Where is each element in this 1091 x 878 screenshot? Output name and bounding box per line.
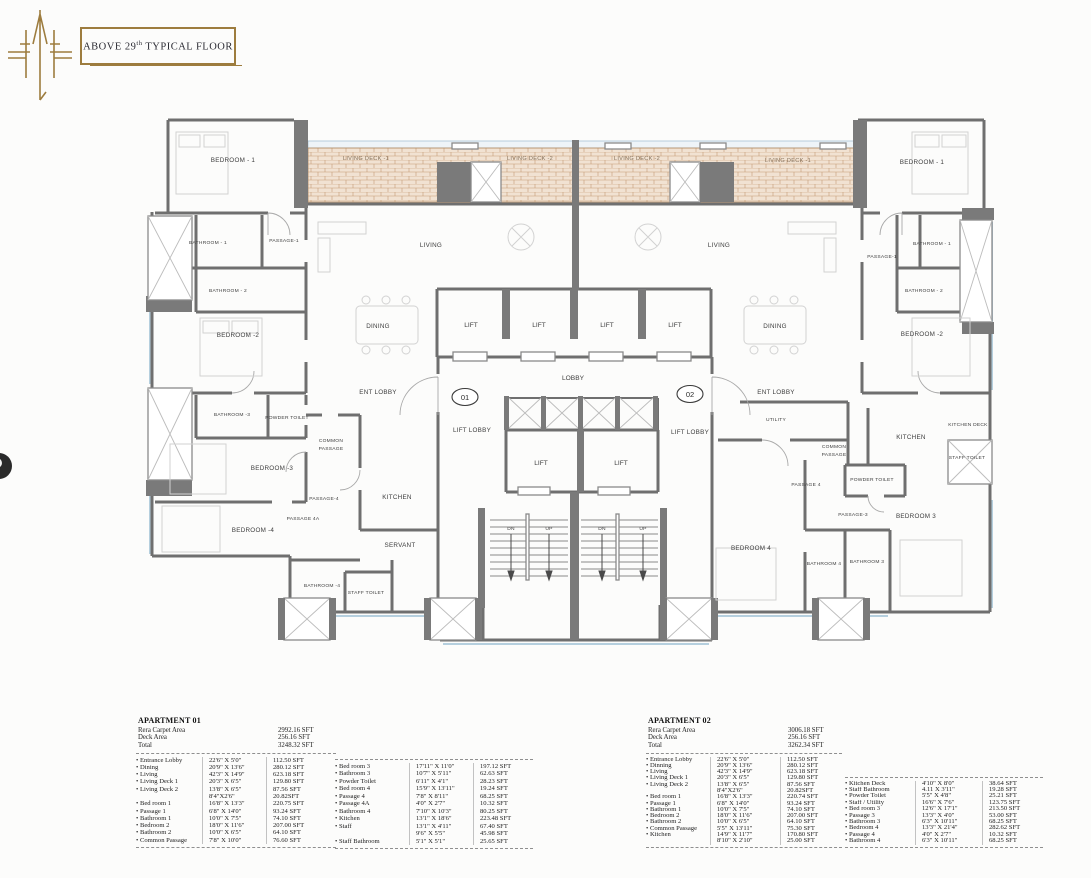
room-name: • Bathroom 4 xyxy=(845,838,915,844)
room-name: • Entrance Lobby xyxy=(136,757,202,764)
room-area: 223.48 SFT xyxy=(473,815,533,823)
room-label-powder-toilet: POWDER TOILET xyxy=(850,477,894,483)
room-area: 64.10 SFT xyxy=(266,829,336,836)
room-label-bedroom1: BEDROOM - 1 xyxy=(900,159,945,166)
room-dimension: 10'0" X 6'5" xyxy=(202,829,266,836)
room-label-common-passage: COMMON xyxy=(822,444,847,450)
room-area: 28.23 SFT xyxy=(473,778,533,786)
room-area: 623.18 SFT xyxy=(266,771,336,778)
room-label-powder-toilet: POWDER TOILET xyxy=(265,415,309,421)
summary-label: Total xyxy=(648,742,788,749)
room-area: 25.65 SFT xyxy=(473,838,533,846)
lobby-label: LOBBY xyxy=(562,375,585,382)
table-row: • Living Deck 213'8" X 6'5"87.56 SFT xyxy=(136,786,336,793)
room-name: • Dining xyxy=(136,764,202,771)
summary-row: Rera Carpet Area3006.18 SFT xyxy=(648,727,824,734)
unit-marker-01: 01 xyxy=(452,389,478,406)
table-row: • Bathroom 310'7" X 5'11"62.63 SFT xyxy=(335,770,533,778)
room-label-passage4a: PASSAGE 4A xyxy=(287,516,320,522)
room-label-utility: UTILITY xyxy=(766,417,786,423)
table-row: • Passage 16'8" X 14'0"93.24 SFT xyxy=(136,808,336,815)
deck-label-1: LIVING DECK -1 xyxy=(343,156,389,162)
room-label-kitchen-deck: KITCHEN DECK xyxy=(948,422,988,428)
door-swings xyxy=(232,213,940,512)
room-name: • Passage 4A xyxy=(335,800,409,808)
section-marker xyxy=(0,453,12,479)
room-label-bathroom4: BATHROOM -4 xyxy=(304,583,340,589)
room-dimension: 42'3" X 14'9" xyxy=(202,771,266,778)
room-dimension: 10'0" X 7'5" xyxy=(202,815,266,822)
room-label-common-passage: PASSAGE xyxy=(822,452,847,458)
room-area: 280.12 SFT xyxy=(266,764,336,771)
apartment-02-summary: Rera Carpet Area3006.18 SFTDeck Area256.… xyxy=(648,727,824,749)
room-name: • Living Deck 2 xyxy=(136,786,202,793)
room-name: • Bathroom 2 xyxy=(136,829,202,836)
apartment-01-title: APARTMENT 01 xyxy=(138,716,201,725)
room-label-common-passage: PASSAGE xyxy=(319,446,344,452)
room-label-bedroom3: BEDROOM -3 xyxy=(251,465,294,472)
room-dimension: 22'6" X 5'0" xyxy=(202,757,266,764)
room-area: 74.10 SFT xyxy=(266,815,336,822)
room-dimension: 6'8" X 14'0" xyxy=(202,808,266,815)
table-row: 8'10" X 2'10"25.00 SFT xyxy=(646,838,842,844)
room-name: • Bathroom 1 xyxy=(136,815,202,822)
lift-label: LIFT xyxy=(614,460,628,467)
room-area: 67.40 SFT xyxy=(473,823,533,831)
room-name: • Powder Toilet xyxy=(335,778,409,786)
lift-label: LIFT xyxy=(534,460,548,467)
room-label-living: LIVING xyxy=(420,242,442,249)
summary-value: 256.16 SFT xyxy=(788,734,824,741)
room-dimension: 6'3" X 10'11" xyxy=(915,838,982,844)
summary-row: Total3248.32 SFT xyxy=(138,742,314,749)
summary-label: Deck Area xyxy=(648,734,788,741)
table-row: • Bedroom 218'0" X 11'6"207.00 SFT xyxy=(136,822,336,829)
room-dimension: 18'0" X 11'6" xyxy=(202,822,266,829)
room-name: • Bed room 4 xyxy=(335,785,409,793)
room-dimension: 10'7" X 5'11" xyxy=(409,770,473,778)
table-row: 8'4"X2'6"20.82SFT xyxy=(136,793,336,800)
room-area: 93.24 SFT xyxy=(266,808,336,815)
room-name: • Common Passage xyxy=(136,837,202,844)
room-area: 68.25 SFT xyxy=(473,793,533,801)
room-name: • Bed room 3 xyxy=(335,763,409,771)
room-label-bathroom1: BATHROOM - 1 xyxy=(189,240,227,246)
room-dimension: 17'11" X 11'0" xyxy=(409,763,473,771)
room-label-servant: SERVANT xyxy=(385,542,416,549)
summary-label: Rera Carpet Area xyxy=(648,727,788,734)
summary-row: Deck Area256.16 SFT xyxy=(138,734,314,741)
summary-value: 3248.32 SFT xyxy=(278,742,314,749)
summary-row: Deck Area256.16 SFT xyxy=(648,734,824,741)
room-label-bathroom2: BATHROOM - 2 xyxy=(905,288,943,294)
room-name: • Living Deck 1 xyxy=(136,778,202,785)
room-name: • Bathroom 3 xyxy=(335,770,409,778)
room-name: • Bedroom 2 xyxy=(136,822,202,829)
room-label-bedroom2: BEDROOM -2 xyxy=(901,331,944,338)
summary-value: 2992.16 SFT xyxy=(278,727,314,734)
room-label-bedroom4: BEDROOM 4 xyxy=(731,545,771,552)
room-area: 68.25 SFT xyxy=(982,838,1043,844)
deck-label-2: LIVING DECK -2 xyxy=(507,156,553,162)
summary-value: 256.16 SFT xyxy=(278,734,314,741)
room-dimension: 9'6" X 5'5" xyxy=(409,830,473,838)
room-label-bathroom3: BATHROOM -3 xyxy=(214,412,250,418)
room-label-living: LIVING xyxy=(708,242,730,249)
room-label-kitchen: KITCHEN xyxy=(896,434,926,441)
stair-up-label: UP xyxy=(639,526,646,532)
room-area: 207.00 SFT xyxy=(266,822,336,829)
room-label-bathroom4: BATHROOM 4 xyxy=(807,561,842,567)
room-label-kitchen: KITCHEN xyxy=(382,494,412,501)
room-name xyxy=(136,793,202,800)
summary-value: 3262.34 SFT xyxy=(788,742,824,749)
room-area: 10.32 SFT xyxy=(473,800,533,808)
room-label-dining: DINING xyxy=(366,323,390,330)
room-label-passage4: PASSAGE-4 xyxy=(309,496,339,502)
apartment-02-table-left: • Entrance Lobby22'6" X 5'0"112.50 SFT• … xyxy=(646,753,842,848)
room-dimension: 8'10" X 2'10" xyxy=(710,838,780,844)
room-area: 20.82SFT xyxy=(266,793,336,800)
table-row: • Entrance Lobby22'6" X 5'0"112.50 SFT xyxy=(136,757,336,764)
summary-label: Rera Carpet Area xyxy=(138,727,278,734)
room-area: 45.98 SFT xyxy=(473,830,533,838)
room-label-staff-toilet: STAFF TOILET xyxy=(348,590,384,596)
table-row: • Bathroom 110'0" X 7'5"74.10 SFT xyxy=(136,815,336,822)
room-dimension: 4'0" X 2'7" xyxy=(409,800,473,808)
living-deck-strip xyxy=(308,141,855,202)
room-dimension: 13'8" X 6'5" xyxy=(202,786,266,793)
ent-lobby-right-label: ENT LOBBY xyxy=(757,389,795,396)
apartment-02-table-right: • Kitchen Deck4'10" X 8'0"38.64 SFT• Sta… xyxy=(845,777,1043,848)
floor-plan: 01 02 LIVING DECK -1 LIVING DECK -2 LIVI… xyxy=(0,0,1091,700)
ent-lobby-left-label: ENT LOBBY xyxy=(359,389,397,396)
room-dimension: 16'8" X 13'3" xyxy=(202,800,266,807)
room-label-dining: DINING xyxy=(763,323,787,330)
table-row: • Bed room 415'9" X 13'11"19.24 SFT xyxy=(335,785,533,793)
table-row: • Dining20'9" X 13'6"280.12 SFT xyxy=(136,764,336,771)
room-label-bedroom2: BEDROOM -2 xyxy=(217,332,260,339)
stair-dn-label: DN xyxy=(507,526,515,532)
lift-label: LIFT xyxy=(464,322,478,329)
table-row: • Staff13'1" X 4'11"67.40 SFT xyxy=(335,823,533,831)
room-dimension: 13'1" X 4'11" xyxy=(409,823,473,831)
stair-up-label: UP xyxy=(545,526,552,532)
apartment-02-title: APARTMENT 02 xyxy=(648,716,711,725)
room-area: 62.63 SFT xyxy=(473,770,533,778)
room-name: • Staff xyxy=(335,823,409,831)
room-label-passage1: PASSAGE-1 xyxy=(867,254,897,260)
room-dimension: 6'11" X 4'1" xyxy=(409,778,473,786)
unit-marker-02: 02 xyxy=(677,386,703,403)
title-post: TYPICAL FLOOR xyxy=(142,41,232,52)
apartment-01-table-right: • Bed room 317'11" X 11'0"197.12 SFT• Ba… xyxy=(335,759,533,849)
table-row: • Living Deck 120'3" X 6'5"129.80 SFT xyxy=(136,778,336,785)
room-dimension: 20'9" X 13'6" xyxy=(202,764,266,771)
room-area: 87.56 SFT xyxy=(266,786,336,793)
room-area: 76.60 SFT xyxy=(266,837,336,844)
room-label-passage4: PASSAGE 4 xyxy=(791,482,820,488)
apartment-01-summary: Rera Carpet Area2992.16 SFTDeck Area256.… xyxy=(138,727,314,749)
room-area: 220.75 SFT xyxy=(266,800,336,807)
unit-02-label: 02 xyxy=(686,390,694,399)
room-name xyxy=(646,838,710,844)
summary-label: Deck Area xyxy=(138,734,278,741)
room-dimension: 5'1" X 5'1" xyxy=(409,838,473,846)
room-label-bedroom4: BEDROOM -4 xyxy=(232,527,275,534)
room-dimension: 7'8" X 10'0" xyxy=(202,837,266,844)
room-name: • Kitchen xyxy=(335,815,409,823)
title-box-shadow xyxy=(90,65,242,66)
unit-01-label: 01 xyxy=(461,393,469,402)
room-label-staff-toilet: STAFF TOILET xyxy=(949,455,985,461)
table-row: • Common Passage7'8" X 10'0"76.60 SFT xyxy=(136,837,336,844)
table-row: • Passage 47'8" X 8'11"68.25 SFT xyxy=(335,793,533,801)
room-label-common-passage: COMMON xyxy=(319,438,344,444)
apt2-room-labels: BEDROOM - 1 PASSAGE-1 BATHROOM - 1 BATHR… xyxy=(708,159,988,567)
lift-lobby-left-label: LIFT LOBBY xyxy=(453,427,492,434)
room-name xyxy=(335,830,409,838)
page-title: ABOVE 29th TYPICAL FLOOR xyxy=(83,40,233,53)
room-name: • Bed room 1 xyxy=(136,800,202,807)
summary-value: 3006.18 SFT xyxy=(788,727,824,734)
room-dimension: 7'10" X 10'3" xyxy=(409,808,473,816)
room-label-bathroom1: BATHROOM - 1 xyxy=(913,241,951,247)
room-name: • Staff Bathroom xyxy=(335,838,409,846)
room-name: • Living xyxy=(136,771,202,778)
deck-label-4: LIVING DECK -1 xyxy=(765,158,811,164)
table-row: 9'6" X 5'5"45.98 SFT xyxy=(335,830,533,838)
room-area: 80.25 SFT xyxy=(473,808,533,816)
stair-dn-label: DN xyxy=(598,526,606,532)
summary-row: Total3262.34 SFT xyxy=(648,742,824,749)
lift-label: LIFT xyxy=(532,322,546,329)
room-area: 19.24 SFT xyxy=(473,785,533,793)
room-dimension: 15'9" X 13'11" xyxy=(409,785,473,793)
room-area: 112.50 SFT xyxy=(266,757,336,764)
room-label-bedroom1: BEDROOM - 1 xyxy=(211,157,256,164)
brand-logo xyxy=(8,10,72,100)
table-row: • Bathroom 210'0" X 6'5"64.10 SFT xyxy=(136,829,336,836)
title-box: ABOVE 29th TYPICAL FLOOR xyxy=(80,27,236,65)
lift-lobby-right-label: LIFT LOBBY xyxy=(671,429,710,436)
room-label-passage1: PASSAGE-1 xyxy=(269,238,299,244)
table-row: • Powder Toilet6'11" X 4'1"28.23 SFT xyxy=(335,778,533,786)
lift-label: LIFT xyxy=(668,322,682,329)
room-name: • Bathroom 4 xyxy=(335,808,409,816)
room-label-passage3: PASSAGE-3 xyxy=(838,512,868,518)
summary-row: Rera Carpet Area2992.16 SFT xyxy=(138,727,314,734)
room-name: • Passage 4 xyxy=(335,793,409,801)
title-pre: ABOVE 29 xyxy=(83,41,136,52)
table-row: • Living42'3" X 14'9"623.18 SFT xyxy=(136,771,336,778)
table-row: • Bathroom 46'3" X 10'11"68.25 SFT xyxy=(845,838,1043,844)
summary-label: Total xyxy=(138,742,278,749)
table-row: • Staff Bathroom5'1" X 5'1"25.65 SFT xyxy=(335,838,533,846)
deck-label-3: LIVING DECK -2 xyxy=(614,156,660,162)
table-row: • Kitchen13'1" X 18'6"223.48 SFT xyxy=(335,815,533,823)
room-dimension: 7'8" X 8'11" xyxy=(409,793,473,801)
room-label-bathroom2: BATHROOM - 2 xyxy=(209,288,247,294)
table-row: • Bathroom 47'10" X 10'3"80.25 SFT xyxy=(335,808,533,816)
room-area: 197.12 SFT xyxy=(473,763,533,771)
table-row: • Bed room 317'11" X 11'0"197.12 SFT xyxy=(335,763,533,771)
apartment-01-table-left: • Entrance Lobby22'6" X 5'0"112.50 SFT• … xyxy=(136,753,336,848)
room-name: • Passage 1 xyxy=(136,808,202,815)
room-label-bathroom3: BATHROOM 3 xyxy=(850,559,885,565)
room-dimension: 20'3" X 6'5" xyxy=(202,778,266,785)
room-dimension: 13'1" X 18'6" xyxy=(409,815,473,823)
room-area: 129.80 SFT xyxy=(266,778,336,785)
room-area: 25.00 SFT xyxy=(780,838,842,844)
lift-label: LIFT xyxy=(600,322,614,329)
room-label-bedroom3: BEDROOM 3 xyxy=(896,513,936,520)
table-row: • Bed room 116'8" X 13'3"220.75 SFT xyxy=(136,800,336,807)
table-row: • Passage 4A4'0" X 2'7"10.32 SFT xyxy=(335,800,533,808)
mid-core-bracing xyxy=(504,396,658,430)
room-dimension: 8'4"X2'6" xyxy=(202,793,266,800)
